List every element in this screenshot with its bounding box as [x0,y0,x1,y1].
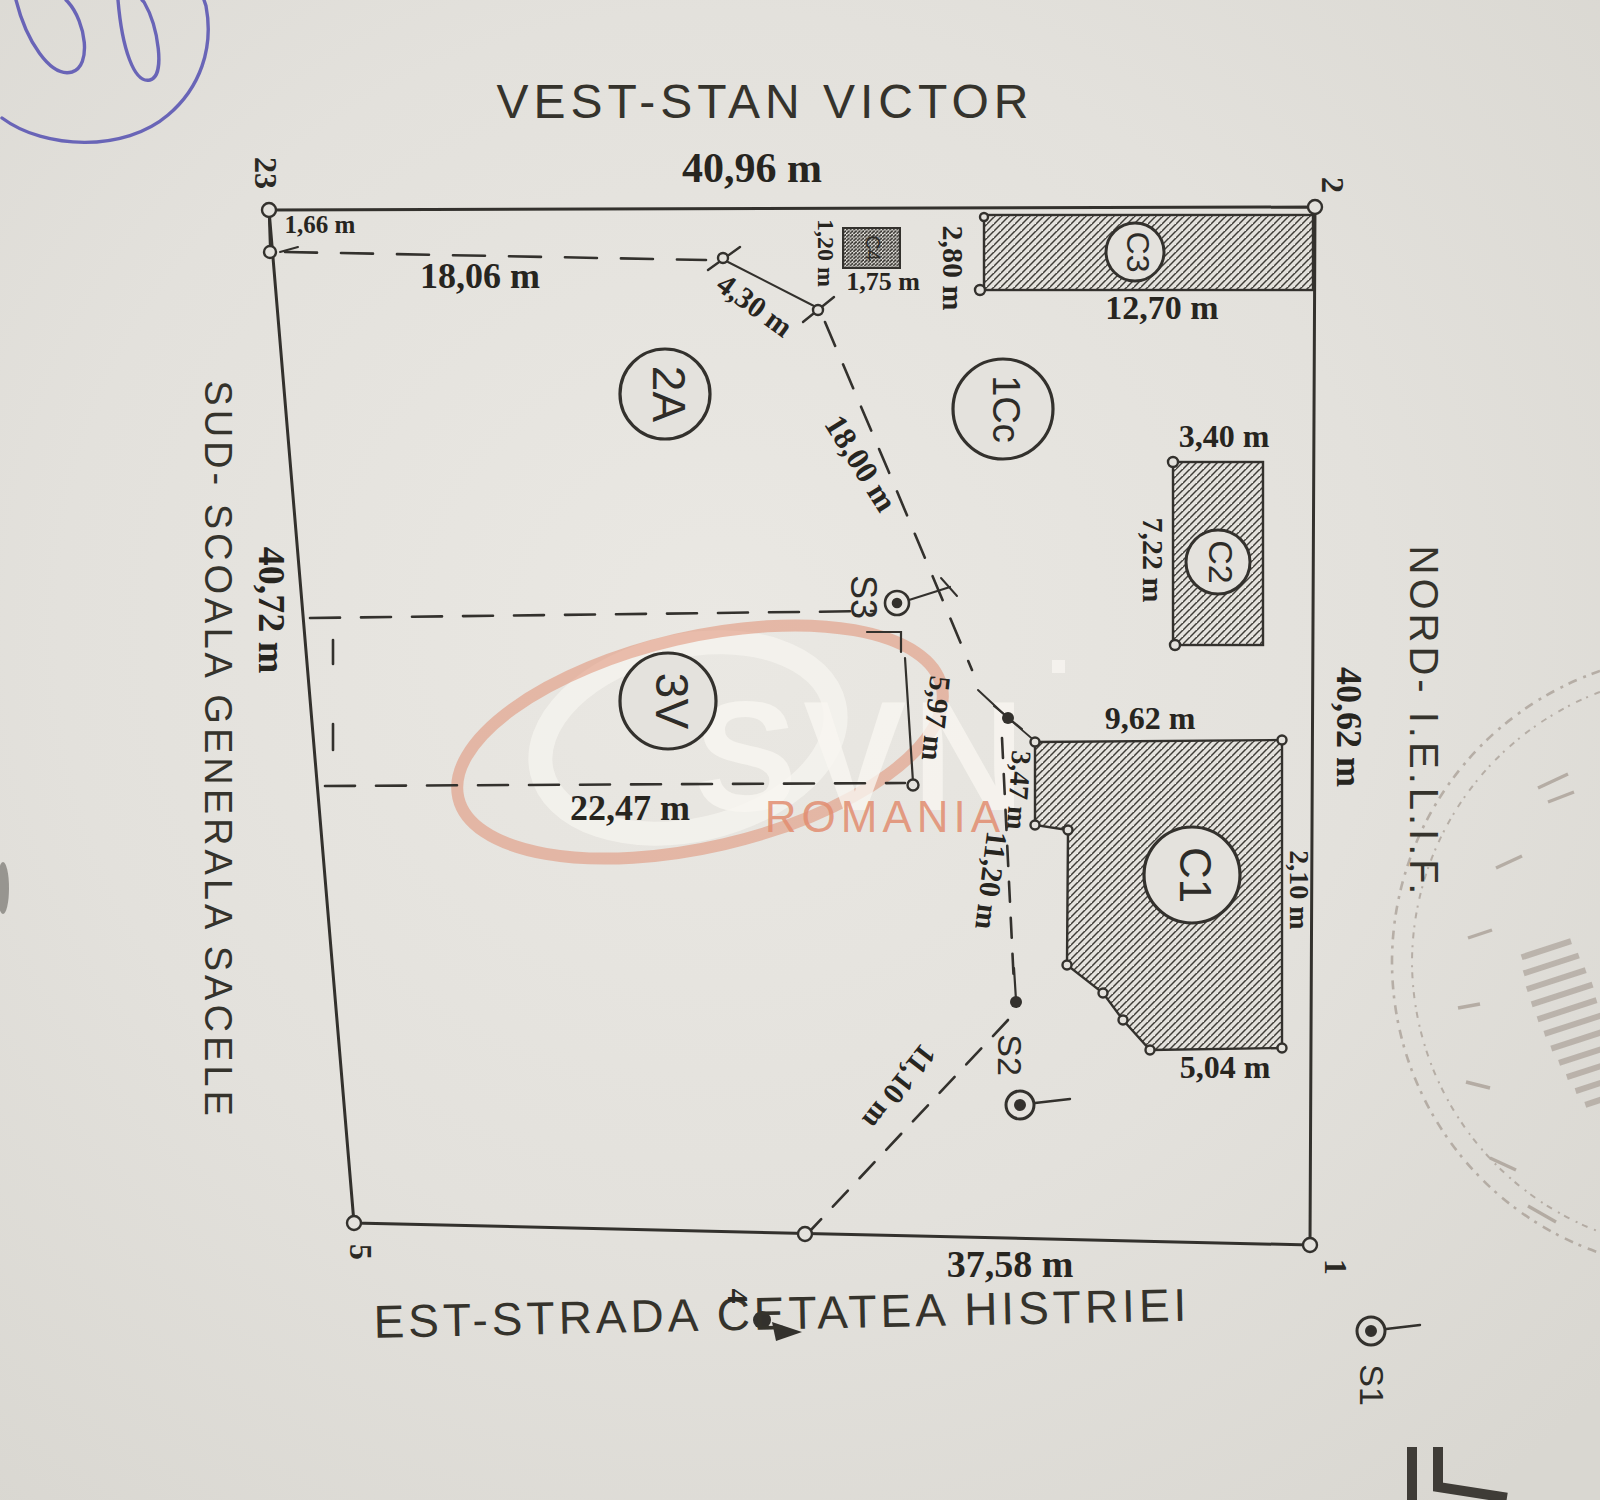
corner-4: 4 [722,1289,755,1304]
dim-1-66: 1,66 m [285,211,356,238]
title-sud: SUD- SCOALA GENERALA SACELE [197,380,239,1119]
dim-nord-length: 40,62 m [1329,667,1369,787]
dim-est-length: 37,58 m [947,1243,1074,1285]
title-vest: VEST-STAN VICTOR [497,75,1034,128]
dim-2-80: 2,80 m [937,226,970,311]
parcel-3V: 3V [646,673,698,730]
title-nord: NORD- I.E.L.I.F. [1402,546,1446,899]
scanned-cadastral-plan: SVN ROMANIA [0,0,1600,1500]
station-S1: S1 [1353,1364,1391,1406]
dim-5-04: 5,04 m [1180,1049,1271,1085]
dim-9-62: 9,62 m [1105,700,1196,736]
cadastral-plan-svg: SVN ROMANIA [0,0,1600,1500]
watermark-region: ROMANIA [765,792,1005,841]
dim-1-20: 1,20 m [812,219,838,287]
building-label-C3: C3 [1120,232,1156,273]
dim-22-47: 22,47 m [570,788,690,828]
station-S2: S2 [991,1034,1029,1076]
building-label-C4: C4 [862,235,884,261]
building-label-C2: C2 [1202,540,1240,583]
parcel-1Cc: 1Cc [985,375,1027,443]
watermark-registered-mark [1052,660,1065,673]
dim-3-47: 3,47 m [1001,750,1037,831]
station-S3: S3 [843,575,884,619]
dim-sud-length: 40,72 m [251,547,293,674]
dim-1-75: 1,75 m [846,267,920,296]
dim-vest-length: 40,96 m [682,145,822,191]
corner-2: 2 [1315,177,1351,193]
corner-5: 5 [343,1244,379,1260]
dim-2-10: 2,10 m [1284,850,1315,929]
dim-12-70: 12,70 m [1105,289,1218,326]
dim-7-22: 7,22 m [1137,518,1170,603]
corner-1: 1 [1318,1259,1354,1275]
dim-3-40: 3,40 m [1179,418,1270,454]
parcel-2A: 2A [643,366,695,423]
building-label-C1: C1 [1171,847,1220,903]
dim-18-06: 18,06 m [420,256,540,296]
corner-23: 23 [248,157,284,189]
